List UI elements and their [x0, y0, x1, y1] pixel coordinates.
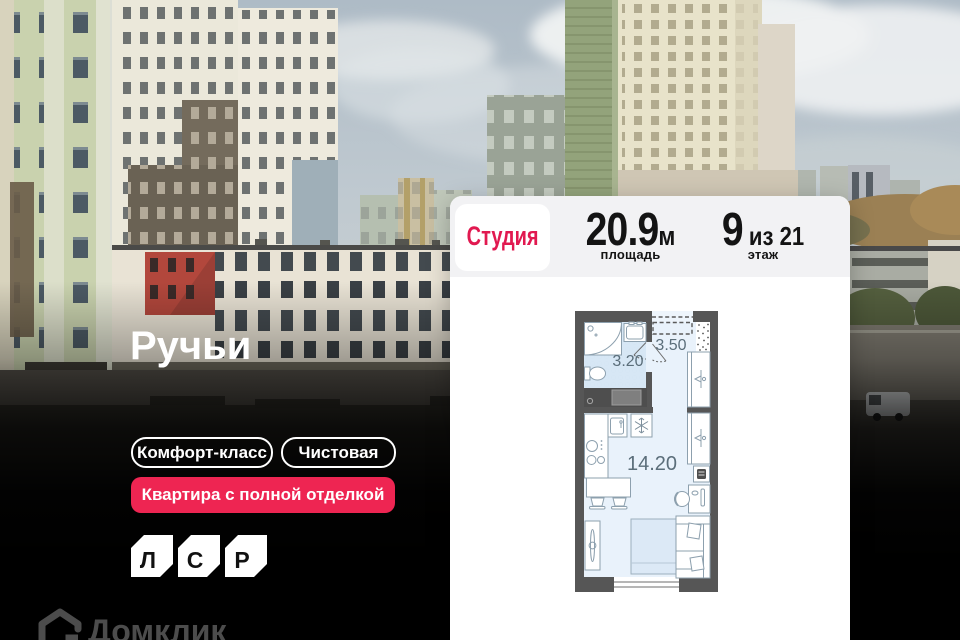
svg-text:3.50: 3.50	[655, 337, 686, 354]
svg-text:3.20: 3.20	[612, 353, 643, 370]
svg-text:Л: Л	[140, 547, 156, 573]
svg-text:Р: Р	[234, 547, 249, 573]
svg-text:Домклик: Домклик	[88, 613, 227, 640]
svg-text:14.20: 14.20	[627, 453, 677, 475]
svg-text:С: С	[187, 547, 204, 573]
